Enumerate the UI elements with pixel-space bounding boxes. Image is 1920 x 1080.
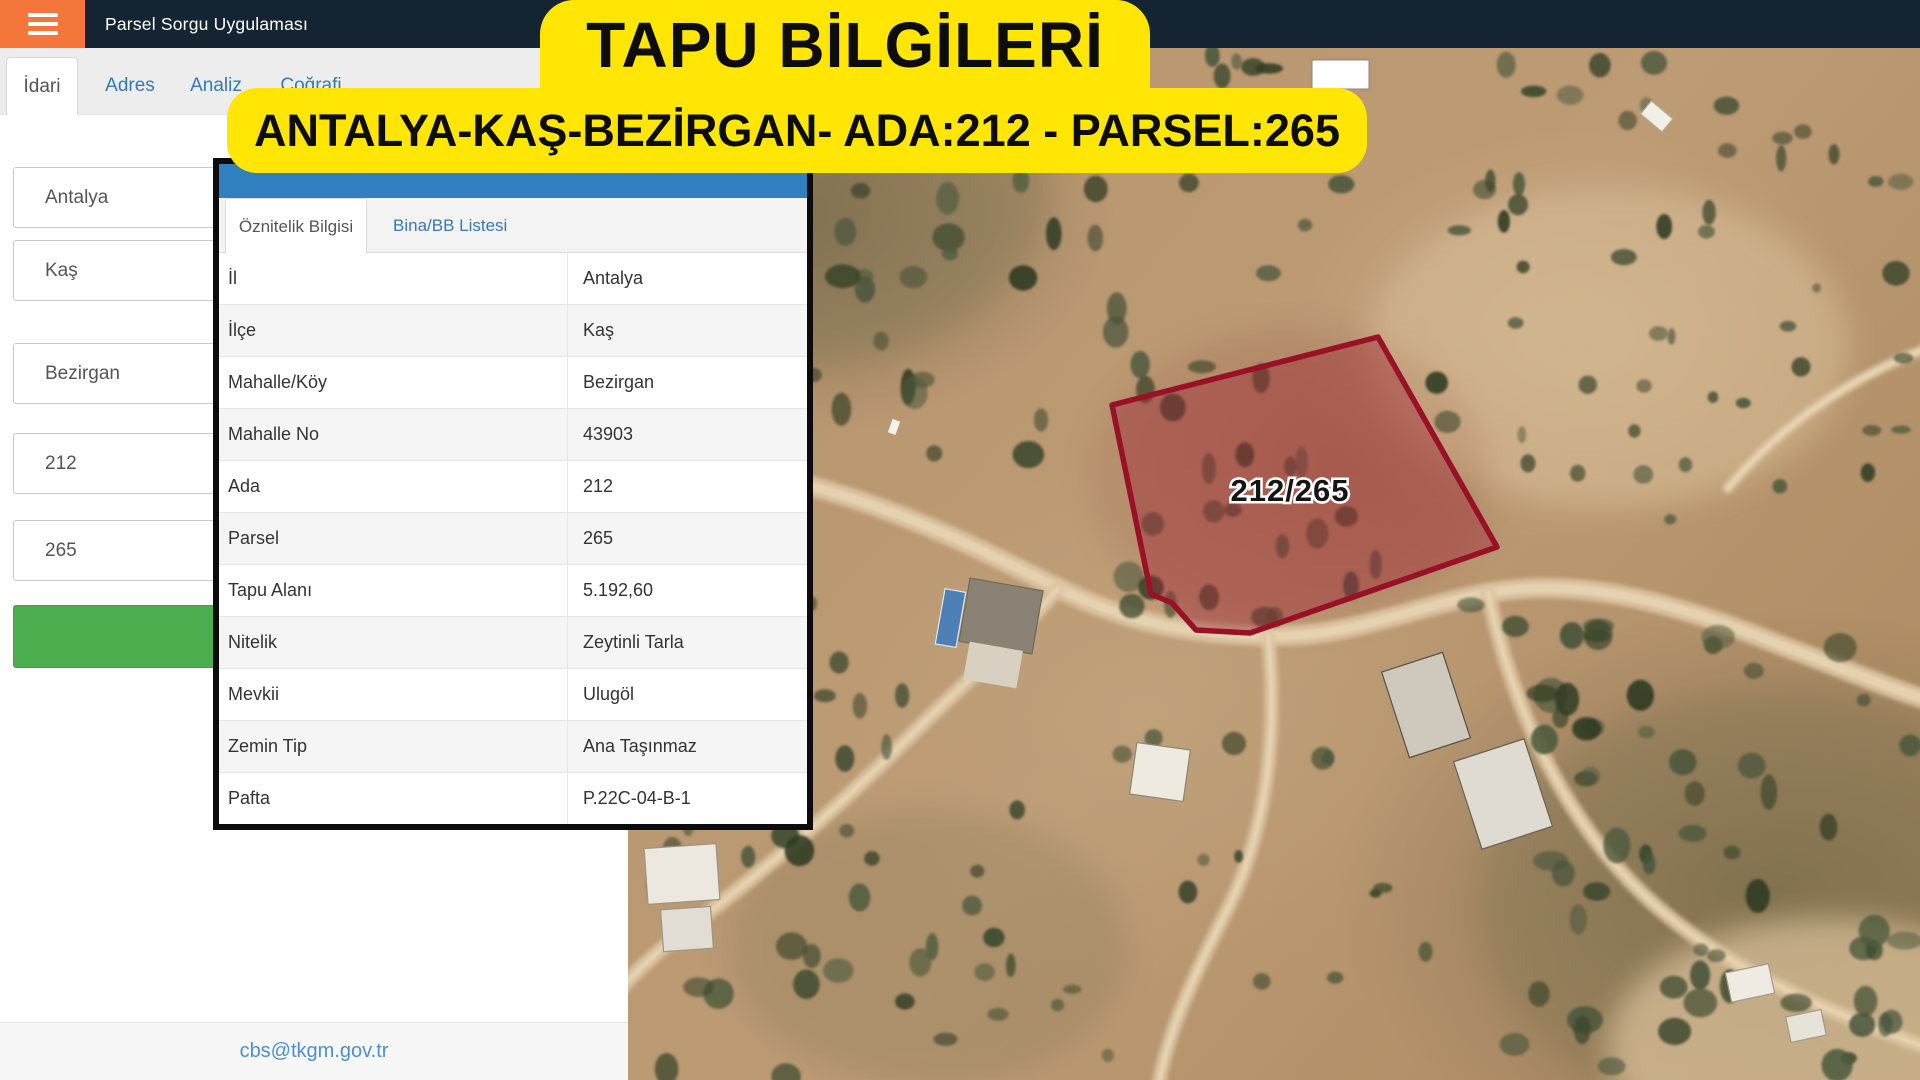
row-value: P.22C-04-B-1 — [568, 773, 807, 824]
row-label: Tapu Alanı — [219, 565, 568, 616]
row-label: Mevkii — [219, 669, 568, 720]
table-row: NitelikZeytinli Tarla — [219, 617, 807, 669]
table-row: MevkiiUlugöl — [219, 669, 807, 721]
row-label: Pafta — [219, 773, 568, 824]
row-value: Antalya — [568, 253, 807, 304]
map-control-box[interactable] — [1312, 60, 1369, 89]
hamburger-menu-icon[interactable] — [0, 0, 85, 48]
row-value: 212 — [568, 461, 807, 512]
banner-subtitle: ANTALYA-KAŞ-BEZİRGAN- ADA:212 - PARSEL:2… — [227, 88, 1367, 173]
map-canvas: 212/265 — [628, 48, 1920, 1080]
table-row: İlçeKaş — [219, 305, 807, 357]
table-row: Mahalle/KöyBezirgan — [219, 357, 807, 409]
table-row: PaftaP.22C-04-B-1 — [219, 773, 807, 824]
row-label: İlçe — [219, 305, 568, 356]
table-row: Tapu Alanı5.192,60 — [219, 565, 807, 617]
row-value: Ana Taşınmaz — [568, 721, 807, 772]
sidebar-footer: cbs@tkgm.gov.tr — [0, 1022, 628, 1080]
row-label: Ada — [219, 461, 568, 512]
table-row: Parsel265 — [219, 513, 807, 565]
row-label: İl — [219, 253, 568, 304]
table-row: Ada212 — [219, 461, 807, 513]
row-value: Zeytinli Tarla — [568, 617, 807, 668]
row-value: 5.192,60 — [568, 565, 807, 616]
row-label: Parsel — [219, 513, 568, 564]
footer-email-link[interactable]: cbs@tkgm.gov.tr — [240, 1040, 389, 1063]
parcel-attributes-table: İlAntalyaİlçeKaşMahalle/KöyBezirganMahal… — [219, 253, 807, 824]
table-row: Mahalle No43903 — [219, 409, 807, 461]
row-label: Mahalle/Köy — [219, 357, 568, 408]
row-value: Bezirgan — [568, 357, 807, 408]
popup-tab-oznitelik[interactable]: Öznitelik Bilgisi — [225, 198, 367, 254]
row-value: Ulugöl — [568, 669, 807, 720]
row-label: Mahalle No — [219, 409, 568, 460]
row-label: Nitelik — [219, 617, 568, 668]
sidebar-tab-i̇dari[interactable]: İdari — [6, 57, 78, 115]
map-satellite-view[interactable]: 212/265 — [628, 48, 1920, 1080]
parcel-label: 212/265 — [1230, 473, 1349, 508]
row-value: 43903 — [568, 409, 807, 460]
table-row: İlAntalya — [219, 253, 807, 305]
popup-tabs: Öznitelik BilgisiBina/BB Listesi — [219, 198, 807, 253]
popup-tab-bina-bb[interactable]: Bina/BB Listesi — [381, 198, 519, 253]
row-value: Kaş — [568, 305, 807, 356]
sidebar-tab-adres[interactable]: Adres — [90, 57, 170, 115]
parcel-info-popup: Öznitelik BilgisiBina/BB Listesi İlAntal… — [213, 158, 813, 830]
banner-title: TAPU BİLGİLERİ — [540, 0, 1150, 89]
row-value: 265 — [568, 513, 807, 564]
app-title: Parsel Sorgu Uygulaması — [105, 14, 308, 35]
row-label: Zemin Tip — [219, 721, 568, 772]
table-row: Zemin TipAna Taşınmaz — [219, 721, 807, 773]
